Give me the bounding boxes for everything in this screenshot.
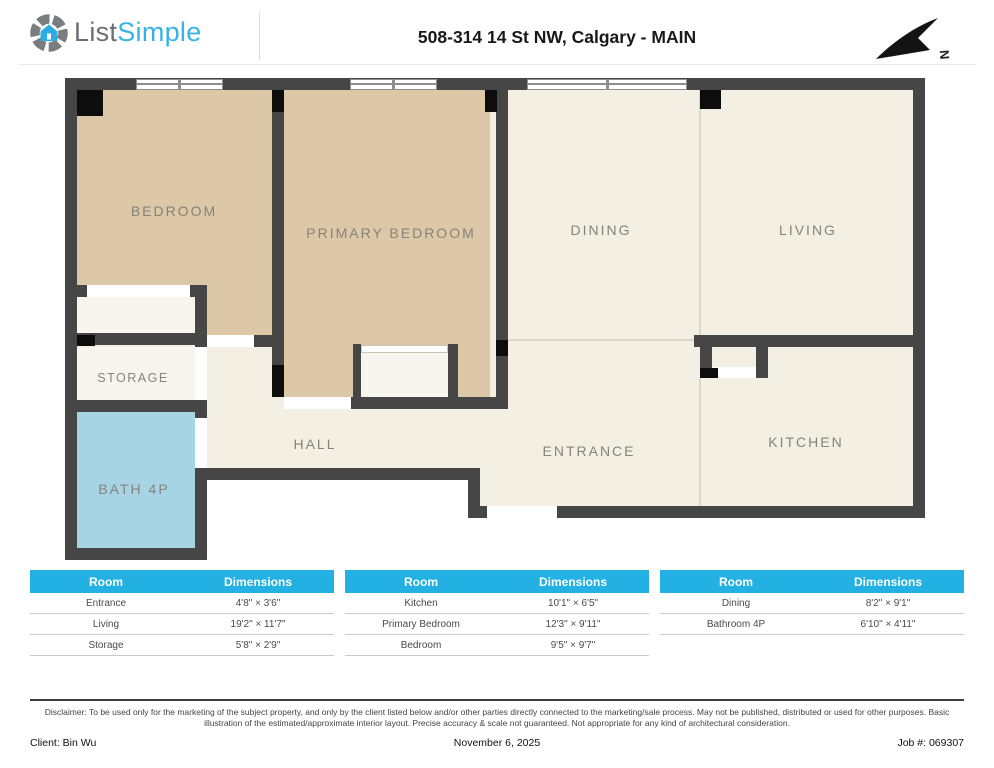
cell-room: Primary Bedroom xyxy=(345,619,497,630)
wall-accent xyxy=(77,90,103,116)
floor-seam xyxy=(508,339,699,341)
logo-word-list: List xyxy=(74,17,117,47)
cell-dimensions: 9'5" × 9'7" xyxy=(497,640,649,651)
wall-right xyxy=(913,78,925,518)
table-row: Storage 5'8" × 2'9" xyxy=(30,635,334,656)
room-label-living: LIVING xyxy=(779,222,837,238)
wall-left-column-right xyxy=(195,285,207,548)
wall-accent xyxy=(272,365,284,397)
footer-rule xyxy=(30,699,964,701)
wall-bedroom-primary xyxy=(272,78,284,397)
window-bedroom xyxy=(136,79,223,90)
room-label-kitchen: KITCHEN xyxy=(768,434,843,450)
column-header-dimensions: Dimensions xyxy=(182,575,334,589)
listsimple-logo-text: ListSimple xyxy=(74,17,202,48)
wall-accent xyxy=(485,90,497,112)
wall-primary-bottom xyxy=(351,397,508,409)
dimension-table-1: Room Dimensions Entrance 4'8" × 3'6" Liv… xyxy=(30,570,334,656)
column-header-room: Room xyxy=(660,575,812,589)
wall-kitchen-closet-right xyxy=(756,347,768,378)
cell-room: Living xyxy=(30,619,182,630)
column-header-room: Room xyxy=(345,575,497,589)
wall-storage-bath xyxy=(65,400,207,412)
cell-dimensions: 8'2" × 9'1" xyxy=(812,598,964,609)
table-row: Primary Bedroom 12'3" × 9'11" xyxy=(345,614,649,635)
dimension-table-2: Room Dimensions Kitchen 10'1" × 6'5" Pri… xyxy=(345,570,649,656)
window-dining xyxy=(527,79,687,90)
compass-north-label: N xyxy=(937,49,953,60)
column-header-dimensions: Dimensions xyxy=(497,575,649,589)
wall-accent xyxy=(496,340,508,356)
cell-dimensions: 12'3" × 9'11" xyxy=(497,619,649,630)
door-opening-kitchen-closet xyxy=(712,367,756,378)
wall-primary-closet-right xyxy=(448,344,458,409)
cell-room: Dining xyxy=(660,598,812,609)
room-floor-bedroom-closet xyxy=(77,297,195,333)
wall-hall-bottom xyxy=(195,468,480,480)
table-row: Entrance 4'8" × 3'6" xyxy=(30,593,334,614)
window-primary-bedroom xyxy=(350,79,437,90)
wall-connector xyxy=(468,480,480,518)
wall-accent xyxy=(272,90,284,112)
wall-accent xyxy=(77,335,95,346)
door-opening-primary xyxy=(284,397,351,409)
logo-divider xyxy=(259,13,260,60)
column-header-dimensions: Dimensions xyxy=(812,575,964,589)
cell-dimensions: 4'8" × 3'6" xyxy=(182,598,334,609)
wall-living-kitchen xyxy=(694,335,913,347)
column-header-room: Room xyxy=(30,575,182,589)
page-title: 508-314 14 St NW, Calgary - MAIN xyxy=(302,27,812,48)
table-row: Kitchen 10'1" × 6'5" xyxy=(345,593,649,614)
north-compass-icon: N xyxy=(872,8,956,68)
report-date: November 6, 2025 xyxy=(0,737,994,749)
floor-seam xyxy=(699,90,701,336)
logo-word-simple: Simple xyxy=(117,17,201,47)
wall-accent xyxy=(700,90,721,109)
table-header-row: Room Dimensions xyxy=(30,570,334,593)
wall-accent xyxy=(700,368,718,378)
listsimple-logo-icon xyxy=(27,11,71,55)
wall-bedroom-ext-bottom xyxy=(254,335,272,347)
cell-room: Bathroom 4P xyxy=(660,619,812,630)
door-opening-storage xyxy=(195,347,207,400)
table-row: Dining 8'2" × 9'1" xyxy=(660,593,964,614)
room-label-hall: HALL xyxy=(293,436,336,452)
room-label-entrance: ENTRANCE xyxy=(542,443,635,459)
door-opening-primary-closet xyxy=(361,345,448,353)
disclaimer-text: Disclaimer: To be used only for the mark… xyxy=(37,707,957,730)
table-row: Living 19'2" × 11'7" xyxy=(30,614,334,635)
cell-dimensions: 19'2" × 11'7" xyxy=(182,619,334,630)
cell-room: Storage xyxy=(30,640,182,651)
room-label-storage: STORAGE xyxy=(97,371,168,385)
room-label-bedroom: BEDROOM xyxy=(131,203,217,219)
wall-bath-bottom xyxy=(65,548,207,560)
cell-dimensions: 5'8" × 2'9" xyxy=(182,640,334,651)
wall-primary-right xyxy=(496,78,508,408)
cell-room: Kitchen xyxy=(345,598,497,609)
room-label-bath: BATH 4P xyxy=(98,481,169,497)
dimension-table-3: Room Dimensions Dining 8'2" × 9'1" Bathr… xyxy=(660,570,964,635)
table-header-row: Room Dimensions xyxy=(660,570,964,593)
wall-primary-closet-left xyxy=(353,344,361,397)
room-floor-bedroom xyxy=(77,90,272,287)
header-rule xyxy=(18,64,976,65)
door-opening-bedroom-closet xyxy=(87,285,190,297)
room-label-dining: DINING xyxy=(571,222,632,238)
cell-dimensions: 10'1" × 6'5" xyxy=(497,598,649,609)
table-header-row: Room Dimensions xyxy=(345,570,649,593)
door-opening-bedroom xyxy=(207,335,254,347)
room-floor-bath xyxy=(77,412,195,548)
table-row: Bathroom 4P 6'10" × 4'11" xyxy=(660,614,964,635)
door-opening-bath xyxy=(195,418,207,468)
room-floor-primary-closet xyxy=(361,352,448,397)
cell-dimensions: 6'10" × 4'11" xyxy=(812,619,964,630)
room-floor-bedroom-ext xyxy=(207,287,272,337)
room-floor-entrance-kitchen xyxy=(468,476,913,508)
floor-seam xyxy=(699,378,701,506)
job-number: Job #: 069307 xyxy=(897,737,964,749)
cell-room: Bedroom xyxy=(345,640,497,651)
wall-left xyxy=(65,78,77,560)
table-row: Bedroom 9'5" × 9'7" xyxy=(345,635,649,656)
cell-room: Entrance xyxy=(30,598,182,609)
room-label-primary-bedroom: PRIMARY BEDROOM xyxy=(306,225,476,241)
door-opening-entrance xyxy=(487,506,557,518)
